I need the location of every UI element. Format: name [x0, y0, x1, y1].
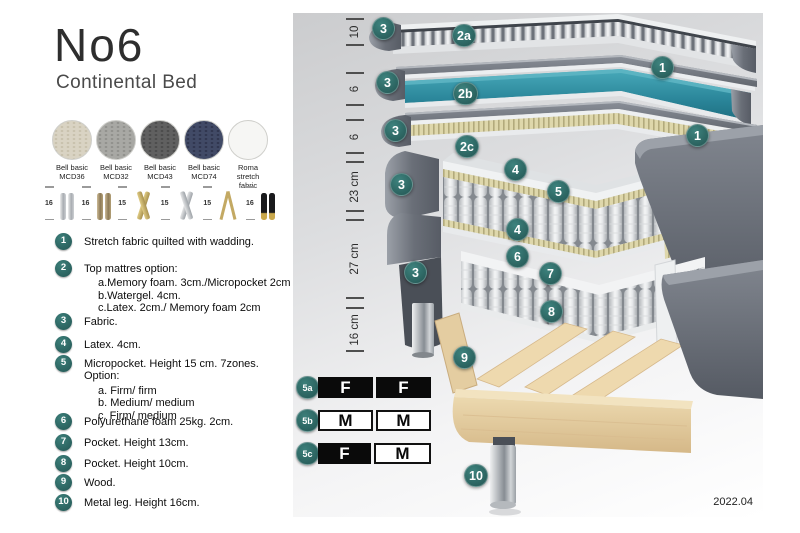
dimension-10: 10: [343, 18, 367, 46]
badge-6: 6: [506, 245, 529, 268]
dimension-6b: 6: [343, 119, 367, 154]
feature-item-5: 5 Micropocket. Height 15 cm. 7zones. Opt…: [55, 355, 297, 422]
feature-item-4: 4 Latex. 4cm.: [55, 336, 297, 353]
feature-item-10: 10 Metal leg. Height 16cm.: [55, 494, 297, 511]
feature-number: 8: [55, 455, 72, 472]
feature-item-2: 2 Top mattres option: a.Memory foam. 3cm…: [55, 260, 297, 315]
badge-2b: 2b: [453, 82, 478, 105]
feature-text: Pocket. Height 13cm.: [84, 434, 189, 451]
feature-item-7: 7 Pocket. Height 13cm.: [55, 434, 297, 451]
feature-item-3: 3 Fabric.: [55, 313, 297, 330]
leg-option-cylinder-silver: 16: [45, 186, 74, 220]
gray-cover-lower: [662, 260, 763, 399]
feature-text: Metal leg. Height 16cm.: [84, 494, 200, 511]
leg-option-cylinder-bronze: 16: [82, 186, 111, 220]
dimension-6a: 6: [343, 72, 367, 106]
feature-item-9: 9 Wood.: [55, 474, 297, 491]
firmness-cell: F: [318, 377, 373, 398]
feature-text: Fabric.: [84, 313, 118, 330]
badge-2c: 2c: [455, 135, 479, 158]
leg-tapered-black-icon: [261, 186, 275, 220]
badge-4: 4: [506, 218, 529, 241]
badge-3: 3: [390, 173, 413, 196]
feature-option: b. Medium/ medium: [98, 397, 297, 410]
fabric-name: Bell basic: [56, 163, 88, 172]
firmness-row-5c: F M: [318, 443, 431, 464]
leg-height: 15: [118, 200, 126, 207]
firmness-row-5a: F F: [318, 377, 431, 398]
leg-cylinder-silver-icon: [60, 186, 74, 220]
feature-option: a. Firm/ firm: [98, 385, 297, 398]
fabric-swatch-icon: [96, 120, 136, 160]
exploded-bed-diagram: 10 6 6 23 cm 27 cm 16 cm 3 2a 1 3 2b 1 3…: [293, 13, 763, 517]
feature-text: Top mattres option:: [84, 263, 178, 275]
feature-number: 6: [55, 413, 72, 430]
feature-number: 3: [55, 313, 72, 330]
fabric-name: Bell basic: [100, 163, 132, 172]
firmness-cell: M: [374, 443, 431, 464]
fabric-name: Roma: [238, 163, 258, 172]
badge-3: 3: [376, 71, 399, 94]
feature-item-8: 8 Pocket. Height 10cm.: [55, 455, 297, 472]
firmness-row-label-5c: 5c: [296, 442, 319, 465]
firmness-cell: M: [318, 410, 373, 431]
leg-options: 16 16 15 15 15 16: [45, 186, 275, 220]
feature-number: 4: [55, 336, 72, 353]
feature-text: Pocket. Height 10cm.: [84, 455, 189, 472]
feature-number: 1: [55, 233, 72, 250]
metal-leg-back: [412, 295, 434, 358]
firmness-row-label-5a: 5a: [296, 376, 319, 399]
fabric-swatches: Bell basic MCD36 Bell basic MCD32 Bell b…: [51, 120, 269, 190]
firmness-cell: F: [318, 443, 371, 464]
fabric-swatch: Roma stretch fabric: [227, 120, 269, 190]
feature-item-1: 1 Stretch fabric quilted with wadding.: [55, 233, 297, 250]
feature-text: Stretch fabric quilted with wadding.: [84, 233, 254, 250]
feature-text: Micropocket. Height 15 cm. 7zones. Optio…: [84, 358, 259, 383]
fabric-swatch-icon: [52, 120, 92, 160]
badge-3: 3: [384, 119, 407, 142]
leg-cross-gold-icon: [133, 186, 153, 220]
leg-option-cross-silver: 15: [161, 186, 196, 220]
badge-3: 3: [404, 261, 427, 284]
fabric-swatch: Bell basic MCD32: [95, 120, 137, 190]
dimension-27cm: 27 cm: [343, 219, 367, 299]
badge-7: 7: [539, 262, 562, 285]
fabric-code: MCD36: [59, 172, 84, 181]
version-date: 2022.04: [713, 496, 753, 508]
leg-height: 16: [246, 200, 254, 207]
fabric-swatch: Bell basic MCD74: [183, 120, 225, 190]
firmness-row-label-5b: 5b: [296, 409, 319, 432]
leg-height: 16: [45, 200, 53, 207]
badge-8: 8: [540, 300, 563, 323]
leg-option-hairpin: 15: [203, 186, 238, 220]
fabric-name: Bell basic: [188, 163, 220, 172]
page-title: No6: [54, 18, 144, 72]
fabric-swatch-icon: [184, 120, 224, 160]
firmness-cell: F: [376, 377, 431, 398]
fabric-swatch: Bell basic MCD43: [139, 120, 181, 190]
dimension-label: 16 cm: [349, 314, 361, 345]
badge-4: 4: [504, 158, 527, 181]
badge-1: 1: [651, 56, 674, 79]
product-sheet: No6 Continental Bed Bell basic MCD36 Bel…: [0, 0, 800, 533]
feature-text: Wood.: [84, 474, 116, 491]
fabric-swatch-icon: [228, 120, 268, 160]
fabric-swatch-icon: [140, 120, 180, 160]
leg-hairpin-icon: [218, 186, 238, 220]
fabric-code: MCD32: [103, 172, 128, 181]
leg-cross-silver-icon: [176, 186, 196, 220]
feature-number: 2: [55, 260, 72, 277]
leg-height: 15: [203, 200, 211, 207]
feature-text: Latex. 4cm.: [84, 336, 141, 353]
badge-3: 3: [372, 17, 395, 40]
firmness-cell: M: [376, 410, 431, 431]
leg-height: 16: [82, 200, 90, 207]
feature-number: 7: [55, 434, 72, 451]
feature-number: 9: [55, 474, 72, 491]
feature-text: Polyurethane foam 25kg. 2cm.: [84, 413, 233, 430]
badge-10: 10: [464, 464, 488, 487]
leg-cylinder-bronze-icon: [97, 186, 111, 220]
metal-leg-front: [489, 437, 521, 516]
firmness-row-5b: M M: [318, 410, 431, 431]
feature-item-6: 6 Polyurethane foam 25kg. 2cm.: [55, 413, 297, 430]
page-subtitle: Continental Bed: [56, 72, 197, 94]
dimension-label: 10: [349, 26, 361, 39]
feature-option: b.Watergel. 4cm.: [98, 290, 291, 303]
dimension-label: 27 cm: [349, 243, 361, 274]
fabric-name: Bell basic: [144, 163, 176, 172]
feature-option: a.Memory foam. 3cm./Micropocket 2cm: [98, 277, 291, 290]
badge-2a: 2a: [452, 24, 476, 47]
leg-option-tapered-black: 16: [246, 186, 275, 220]
fabric-swatch: Bell basic MCD36: [51, 120, 93, 190]
leg-option-cross-gold: 15: [118, 186, 153, 220]
dimension-label: 6: [349, 86, 361, 92]
feature-number: 10: [55, 494, 72, 511]
dimension-23cm: 23 cm: [343, 161, 367, 212]
wood-base: [435, 313, 693, 453]
feature-number: 5: [55, 355, 72, 372]
badge-1: 1: [686, 124, 709, 147]
leg-height: 15: [161, 200, 169, 207]
badge-9: 9: [453, 346, 476, 369]
badge-5: 5: [547, 180, 570, 203]
fabric-code: MCD74: [191, 172, 216, 181]
fabric-code: MCD43: [147, 172, 172, 181]
dimension-16cm: 16 cm: [343, 307, 367, 352]
dimension-label: 23 cm: [349, 171, 361, 202]
dimension-label: 6: [349, 133, 361, 139]
